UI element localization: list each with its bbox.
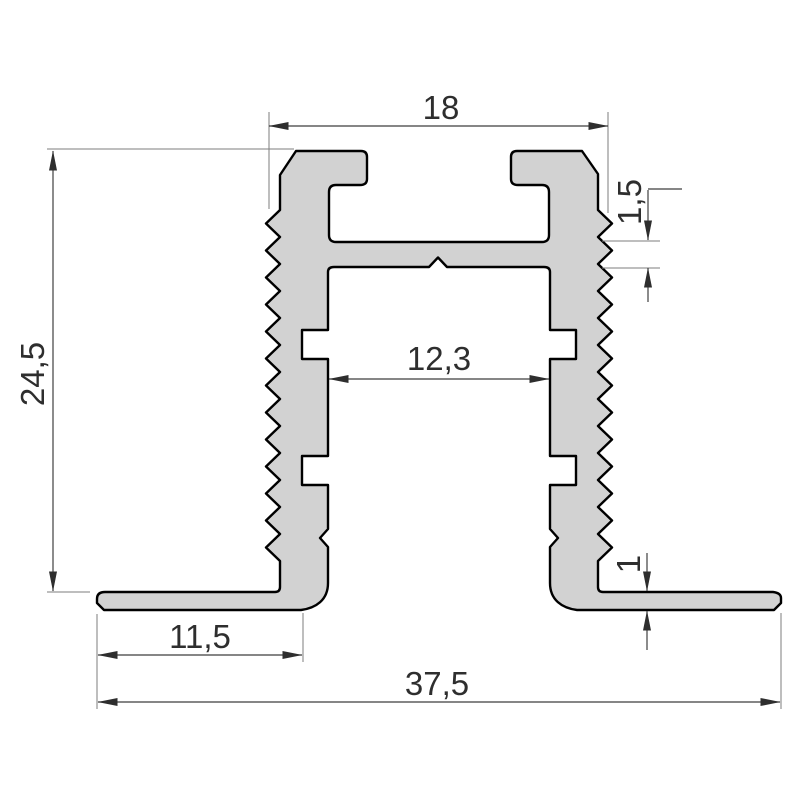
dim-label-overall-height: 24,5 — [14, 342, 51, 406]
dimension-inner-width: 12,3 — [329, 340, 549, 379]
profile-dimension-drawing: 18 1,5 24,5 12,3 1 11,5 37,5 — [0, 0, 800, 800]
dim-label-tooth-pitch: 1,5 — [611, 179, 648, 225]
dim-label-flange-thickness: 1 — [610, 555, 647, 573]
dim-label-flange-length: 11,5 — [169, 618, 231, 655]
dimension-flange-length: 11,5 — [98, 613, 303, 662]
dim-label-top-width: 18 — [423, 89, 460, 126]
dimension-tooth-pitch: 1,5 — [602, 179, 682, 302]
dimension-overall-height: 24,5 — [14, 149, 294, 592]
profile-cross-section — [97, 151, 781, 610]
dim-label-inner-width: 12,3 — [407, 340, 471, 377]
technical-drawing-canvas: 18 1,5 24,5 12,3 1 11,5 37,5 — [0, 0, 800, 800]
dim-label-overall-width: 37,5 — [405, 665, 469, 702]
